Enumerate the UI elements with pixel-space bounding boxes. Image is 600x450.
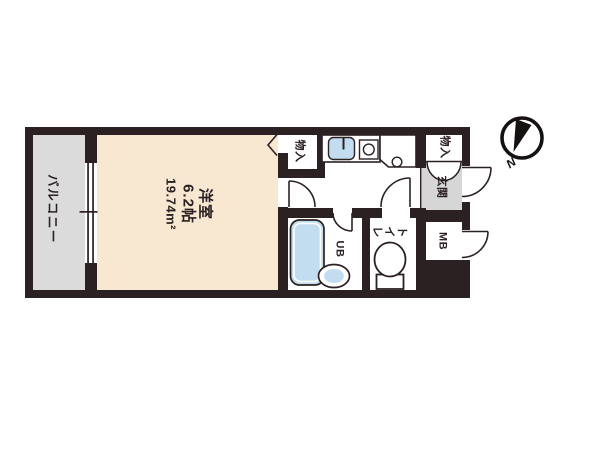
compass: [502, 118, 542, 158]
toilet-fixture: [375, 243, 406, 290]
wall-balcony-lower: [85, 263, 97, 290]
wall-corridor-2: [352, 208, 382, 218]
balcony-label: バルコニー: [46, 174, 59, 244]
toilet-label: トイレ: [371, 224, 409, 236]
closet-kitchen-label: 物入: [294, 140, 305, 163]
window-center-tick: [80, 211, 98, 213]
entrance-label: 玄関: [436, 176, 447, 199]
wall-mb-bottom-block: [416, 260, 470, 298]
wall-top: [25, 127, 470, 135]
mb-door: [462, 232, 488, 258]
closet-entrance-label: 物入: [439, 136, 450, 159]
wall-left: [25, 127, 33, 298]
floorplan: バルコニー 洋室 6.2帖 19.74m² 物入 物入 玄関 MB UB トイレ…: [0, 0, 600, 450]
wall-ub-toilet: [362, 218, 370, 290]
wall-corridor-1: [288, 208, 333, 218]
wall-balcony-upper: [85, 135, 97, 163]
wall-corridor-3: [410, 208, 416, 218]
counter-corner-circle: [392, 157, 402, 167]
western-room-area: 19.74m²: [163, 178, 180, 230]
entrance-door: [462, 168, 491, 197]
wall-right-upper: [462, 135, 470, 166]
kitchen-sink: [329, 138, 355, 160]
western-room-label: 洋室 6.2帖 19.74m²: [163, 178, 214, 230]
kitchen: [322, 135, 416, 167]
wall-room-ub: [278, 207, 288, 290]
washbasin-bowl: [324, 269, 344, 283]
western-room-size: 6.2帖: [180, 178, 197, 230]
unit-bath-label: UB: [334, 241, 345, 258]
wall-bottom: [25, 290, 470, 298]
meter-box-label: MB: [437, 232, 448, 250]
wall-entrance-mb: [416, 210, 470, 222]
western-room-name: 洋室: [197, 178, 214, 230]
wall-closet2-left: [416, 135, 426, 168]
stove-burner: [363, 144, 374, 155]
toilet-bowl: [375, 243, 406, 277]
floorplan-drawing: [0, 0, 600, 450]
